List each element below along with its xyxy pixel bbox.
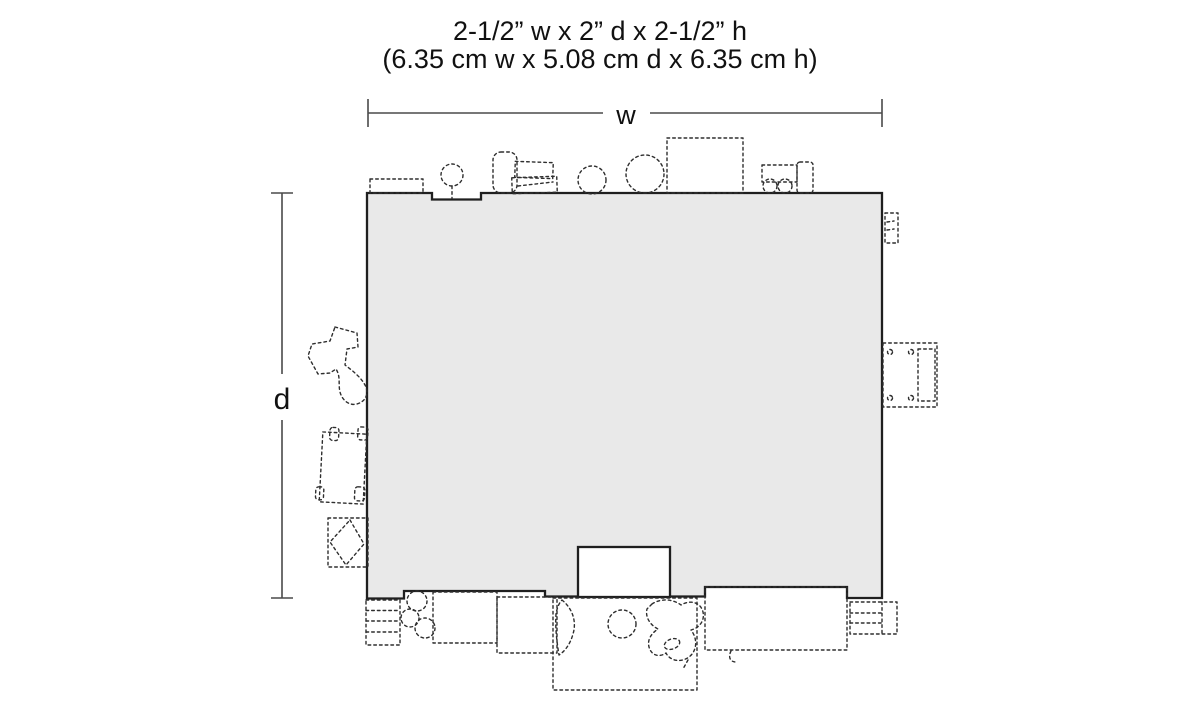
detail-cart (762, 162, 813, 193)
detail-corner-steps (850, 602, 897, 634)
detail-barrel-circle (441, 164, 463, 186)
detail-platform-center (497, 597, 557, 653)
detail-meter-box-outline (885, 213, 898, 243)
detail-side-deck-post1 (888, 350, 893, 355)
bottom-edge-details (366, 587, 897, 690)
detail-bench-boxes (512, 161, 558, 193)
detail-yard-leaf (556, 600, 575, 655)
detail-yard-area (553, 598, 703, 690)
detail-bench-lower (512, 176, 558, 194)
top-edge-details (370, 138, 813, 198)
detail-meter-box-mark1 (887, 221, 894, 222)
entry-alcove-notch (578, 547, 670, 597)
detail-meter-box (885, 213, 898, 243)
detail-pallet-diamond (330, 520, 364, 565)
detail-yard-outline (553, 598, 697, 690)
detail-rock-cluster (401, 591, 435, 638)
footprint-diagram: w d (0, 0, 1200, 709)
detail-side-deck-steps (918, 349, 935, 401)
detail-yard-figure (647, 600, 704, 661)
detail-pallet-square (328, 518, 368, 567)
footprint-diagram-page: 2-1/2” w x 2” d x 2-1/2” h (6.35 cm w x … (0, 0, 1200, 709)
detail-meter-box-mark2 (887, 229, 894, 230)
detail-side-deck-post3 (888, 396, 893, 401)
detail-cart-wheel-left (763, 179, 777, 193)
detail-yard-barrel (608, 610, 636, 638)
detail-side-deck-outline (883, 343, 937, 407)
building-footprint-outline (367, 193, 882, 599)
detail-rock-outcrop (308, 327, 367, 404)
width-dimension-line: w (368, 99, 882, 130)
detail-corner-steps-frame (850, 602, 897, 634)
detail-ladder-frame (366, 600, 400, 645)
building-footprint (367, 193, 882, 599)
detail-platform-left (433, 592, 497, 643)
depth-dimension-label: d (274, 383, 291, 416)
detail-cart-cab (797, 162, 813, 193)
detail-side-deck (883, 343, 937, 407)
detail-front-porch-hook (730, 651, 736, 662)
detail-trailer (315, 425, 368, 504)
detail-front-porch-outline (705, 587, 847, 650)
detail-yard-figure-arm (663, 637, 681, 652)
detail-rock3 (415, 618, 435, 638)
detail-bench-inner-line (518, 182, 553, 186)
left-edge-details (308, 327, 368, 567)
detail-yard-figure-tail (683, 660, 688, 669)
detail-rock1 (407, 591, 427, 611)
detail-barrel-on-post (441, 164, 463, 198)
detail-tank-rounded (493, 152, 517, 193)
detail-side-deck-post4 (909, 396, 914, 401)
width-dimension-label: w (615, 100, 636, 130)
detail-crate-top-left (370, 179, 423, 193)
detail-trailer-body (319, 432, 367, 504)
detail-cart-wheel-right (778, 179, 792, 193)
detail-front-porch (705, 587, 847, 662)
detail-ladder (366, 600, 400, 645)
detail-barrel-small (578, 166, 606, 194)
detail-side-deck-post2 (909, 350, 914, 355)
right-edge-details (883, 213, 937, 407)
detail-large-crate (667, 138, 743, 193)
detail-barrel-large (626, 155, 664, 193)
depth-dimension-line: d (271, 193, 293, 598)
detail-pallet (328, 518, 368, 567)
detail-trailer-wheel1 (329, 427, 339, 440)
